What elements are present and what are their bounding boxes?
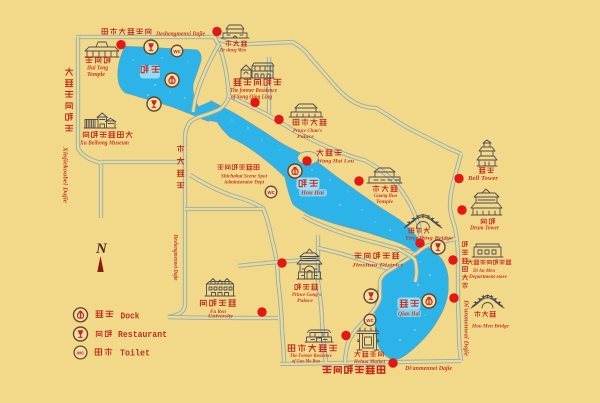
svg-text:Di'anmennei Dajie: Di'anmennei Dajie <box>404 365 452 372</box>
svg-text:Shichahai Scene Spot: Shichahai Scene Spot <box>221 175 268 180</box>
svg-text:Toilet: Toilet <box>120 348 150 359</box>
svg-text:wc: wc <box>365 318 373 324</box>
svg-text:Prince Gong's: Prince Gong's <box>292 293 321 298</box>
svg-text:Ying Ding Bridge: Ying Ding Bridge <box>405 236 454 242</box>
svg-text:University: University <box>208 315 234 320</box>
svg-text:Palace: Palace <box>297 134 315 140</box>
svg-text:Hehua Market: Hehua Market <box>353 359 385 365</box>
svg-text:Palace: Palace <box>297 299 314 304</box>
svg-text:Wang Hai Lou: Wang Hai Lou <box>317 159 354 165</box>
svg-text:wc: wc <box>266 190 274 196</box>
svg-text:of Guo Mo Ruo: of Guo Mo Ruo <box>292 360 320 365</box>
svg-text:De sheng Men: De sheng Men <box>219 48 246 54</box>
svg-text:Di'anmenwai Dajie: Di'anmenwai Dajie <box>463 299 469 357</box>
svg-text:Xu Beihong Museum: Xu Beihong Museum <box>79 141 129 147</box>
svg-text:Jinsitao District: Jinsitao District <box>351 263 404 269</box>
svg-text:Bell Tower: Bell Tower <box>467 176 499 182</box>
svg-text:Temple: Temple <box>87 72 105 78</box>
svg-text:Department store: Department store <box>468 275 508 280</box>
svg-text:Restaurant: Restaurant <box>118 329 167 340</box>
svg-text:Di An Men: Di An Men <box>472 269 495 274</box>
svg-text:Hui Tong: Hui Tong <box>86 66 108 72</box>
svg-text:The former Residence: The former Residence <box>230 88 277 94</box>
svg-text:Hou Men Bridge: Hou Men Bridge <box>471 324 509 330</box>
svg-text:Qian Hai: Qian Hai <box>398 312 420 318</box>
svg-text:Deshengmenxi Dajie: Deshengmenxi Dajie <box>155 31 205 38</box>
svg-text:of Song Qing Ling: of Song Qing Ling <box>231 95 272 101</box>
svg-text:Dock: Dock <box>121 311 140 322</box>
svg-text:The Former Residence: The Former Residence <box>290 354 333 359</box>
svg-text:wc: wc <box>172 49 180 55</box>
svg-text:Deshengmennei Dajie: Deshengmennei Dajie <box>172 234 178 281</box>
svg-text:Administrator Dept: Administrator Dept <box>223 181 265 186</box>
svg-text:N: N <box>95 241 108 257</box>
svg-text:Hou Hai: Hou Hai <box>300 191 324 197</box>
svg-text:wc: wc <box>76 351 84 357</box>
svg-text:Temple: Temple <box>376 199 394 205</box>
svg-text:Xinjiekoubei Dajie: Xinjiekoubei Dajie <box>62 146 68 204</box>
svg-text:Drum Tower: Drum Tower <box>469 226 500 232</box>
